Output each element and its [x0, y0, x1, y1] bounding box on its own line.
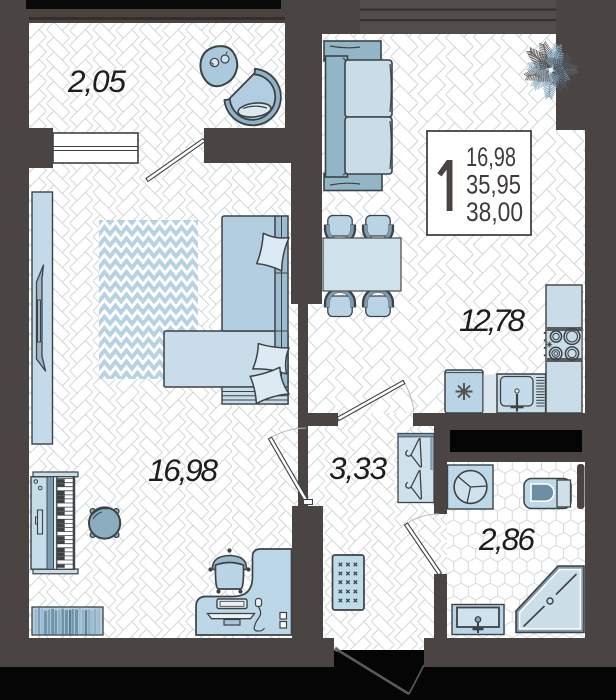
svg-text:12,78: 12,78 — [459, 302, 525, 338]
svg-text:2,86: 2,86 — [478, 521, 535, 557]
svg-text:2,05: 2,05 — [67, 63, 126, 99]
svg-text:16,98: 16,98 — [148, 452, 218, 488]
svg-text:16,98: 16,98 — [466, 142, 516, 172]
svg-text:38,00: 38,00 — [466, 197, 523, 227]
svg-text:35,95: 35,95 — [466, 170, 521, 200]
svg-text:3,33: 3,33 — [329, 450, 387, 486]
